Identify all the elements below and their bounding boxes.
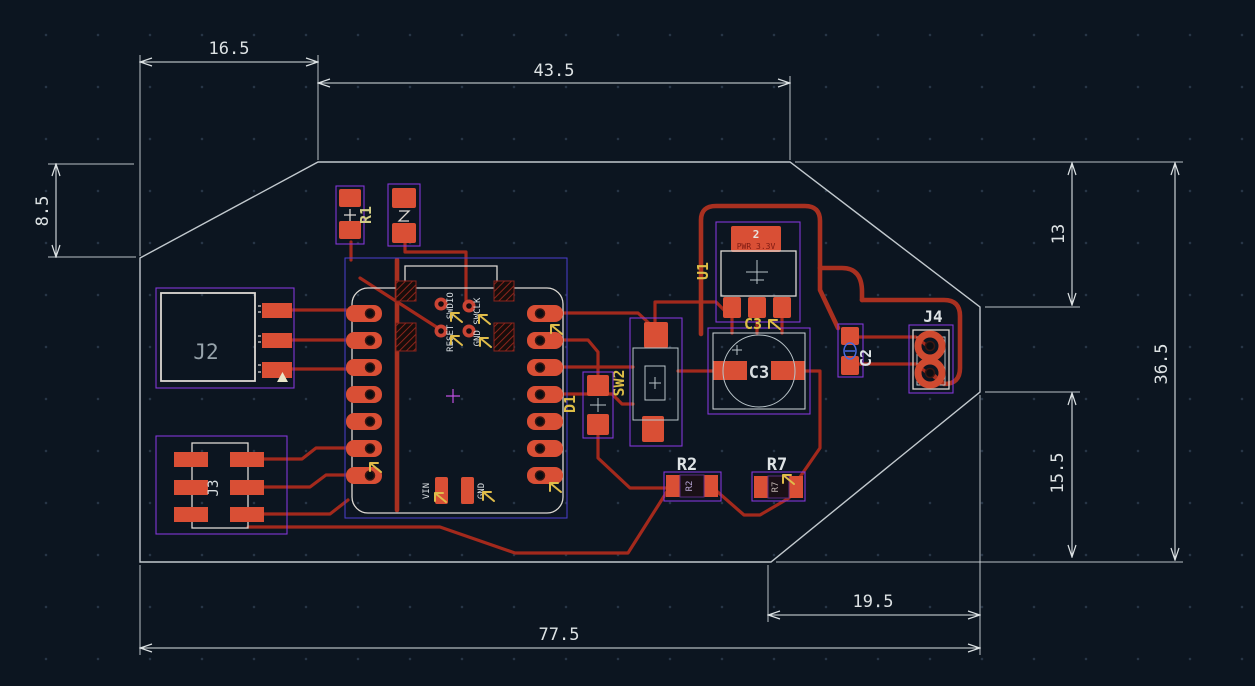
ref-label-r7: R7 (767, 455, 787, 475)
pad[interactable] (262, 333, 292, 348)
dimension-13[interactable]: 13 (1049, 163, 1072, 305)
pad[interactable] (174, 452, 208, 467)
component-j3[interactable]: J3 (156, 436, 287, 534)
component-r2[interactable]: R2 R2 (664, 455, 721, 501)
pad[interactable] (587, 414, 609, 435)
component-u1[interactable]: 2 PWR_3.3V U1 (694, 222, 800, 322)
pad[interactable] (262, 362, 292, 378)
module-right-pads[interactable] (527, 305, 563, 484)
pad[interactable] (723, 297, 741, 318)
pad[interactable] (174, 480, 208, 495)
dimension-value: 16.5 (209, 39, 250, 59)
u1-pad-net-label: PWR_3.3V (737, 242, 776, 251)
pad[interactable] (666, 475, 680, 497)
dimension-value: 15.5 (1048, 453, 1068, 494)
dimension-16-5[interactable]: 16.5 (140, 39, 318, 62)
dimension-value: 43.5 (534, 61, 575, 81)
pad[interactable] (773, 297, 791, 318)
pcb-canvas[interactable]: R1 J2 J3 (0, 0, 1255, 686)
component-c2[interactable]: C2 (838, 324, 875, 377)
component-r7[interactable]: R7 R7 (752, 455, 805, 501)
u1-pad-number: 2 (753, 228, 760, 241)
component-j4[interactable]: J4 (909, 307, 953, 393)
dimension-19-5[interactable]: 19.5 (768, 592, 980, 615)
dimension-value: 8.5 (33, 196, 53, 227)
r2-body-mark: R2 (685, 481, 695, 492)
component-c3[interactable]: C3 C3 (708, 315, 810, 414)
pad[interactable] (754, 476, 768, 498)
pad[interactable] (644, 322, 668, 348)
pad[interactable] (392, 223, 416, 243)
dimension-value: 19.5 (853, 592, 894, 612)
dimension-8-5[interactable]: 8.5 (33, 164, 56, 257)
dimension-77-5[interactable]: 77.5 (140, 625, 980, 648)
pad[interactable] (174, 507, 208, 522)
c3-silk-label: C3 (749, 363, 769, 383)
diode-mark (399, 211, 409, 221)
pad[interactable] (704, 475, 718, 497)
ref-label-c2: C2 (857, 349, 875, 367)
pad[interactable] (713, 361, 747, 380)
plus-mark (344, 209, 356, 221)
ref-label-r1: R1 (357, 206, 375, 224)
pad[interactable] (230, 452, 264, 467)
pad[interactable] (230, 480, 264, 495)
component-mcu-module[interactable]: RESET SWDIO GND SWCLK VIN GND (345, 258, 567, 518)
pad[interactable] (789, 476, 803, 498)
ref-label-j2: J2 (193, 340, 218, 364)
pad[interactable] (587, 375, 609, 396)
label-vin: VIN (422, 483, 432, 499)
dimension-value: 36.5 (1152, 344, 1172, 385)
ref-label-j3: J3 (206, 480, 222, 497)
dimension-15-5[interactable]: 15.5 (1048, 393, 1072, 557)
keepout-hatch (396, 281, 416, 301)
pad[interactable] (771, 361, 805, 380)
pad-gnd[interactable] (461, 477, 474, 504)
pad[interactable] (339, 189, 361, 207)
ref-label-j4: J4 (923, 307, 942, 326)
keepout-hatch (494, 323, 514, 351)
dimension-43-5[interactable]: 43.5 (318, 61, 790, 83)
keepout-hatch (396, 323, 416, 351)
r7-body-mark: R7 (771, 482, 781, 493)
component-sw2[interactable]: SW2 (610, 318, 682, 446)
ref-label-d1: D1 (561, 395, 579, 413)
ref-label-u1: U1 (694, 262, 712, 280)
keepout-hatch (494, 281, 514, 301)
component-c1-r1-group[interactable]: R1 (336, 184, 420, 246)
anchor-cross (446, 389, 460, 403)
component-j2[interactable]: J2 (156, 288, 294, 388)
pad-vin[interactable] (435, 477, 448, 504)
dimension-value: 77.5 (539, 625, 580, 645)
pad[interactable] (230, 507, 264, 522)
pad[interactable] (262, 303, 292, 318)
dimension-value: 13 (1049, 224, 1069, 244)
ref-label-r2: R2 (677, 455, 697, 475)
component-d1[interactable]: D1 (561, 372, 613, 438)
dimension-36-5[interactable]: 36.5 (1152, 163, 1175, 560)
ref-label-c3: C3 (744, 315, 762, 333)
pad[interactable] (392, 188, 416, 208)
